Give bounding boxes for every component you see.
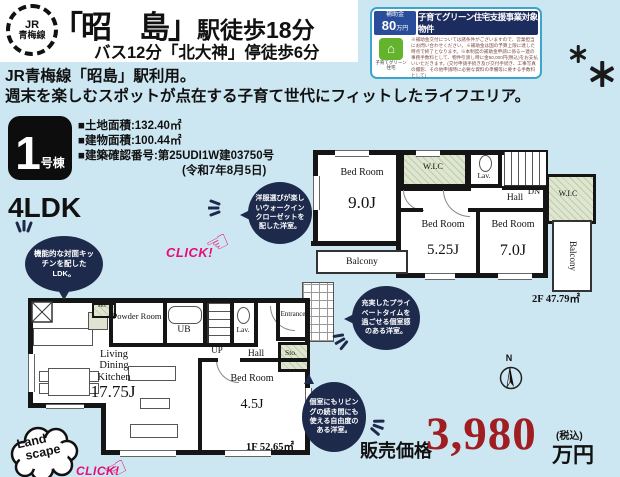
bubble-private: 充実したプライベートタイムを過ごせる個室感のある洋室。 xyxy=(352,286,420,350)
window xyxy=(46,404,84,409)
wall xyxy=(276,337,306,341)
bed4-size: 4.5J xyxy=(226,397,278,412)
wall xyxy=(163,303,167,345)
wall xyxy=(311,241,401,246)
toilet xyxy=(237,307,250,324)
bubble-tail xyxy=(240,210,250,220)
bubble-kitchen: 機能的な対面キッチンを配したLDK。 xyxy=(25,236,103,292)
bed525-size: 5.25J xyxy=(412,242,474,258)
toilet xyxy=(479,155,492,172)
floor-label-2f: 2F 47.79㎡ xyxy=(514,294,598,305)
window xyxy=(498,273,532,280)
stairs-1f xyxy=(207,303,232,343)
kitchen-counter xyxy=(33,328,93,346)
rail-usage-line: JR青梅線「昭島」駅利用。 xyxy=(5,64,195,86)
stairs-2f xyxy=(504,152,546,187)
wall xyxy=(101,403,106,455)
bed70-name: Bed Room xyxy=(484,220,542,231)
bed9-name: Bed Room xyxy=(328,168,396,179)
window xyxy=(313,176,320,210)
bus-access: バス12分「北大神」停徒歩6分 xyxy=(94,39,320,63)
property-facts: ■土地面積:132.40㎡ ■建物面積:100.44㎡ ■建築確認番号:第25U… xyxy=(78,119,274,179)
chair xyxy=(39,371,49,382)
bubble-tail xyxy=(304,374,314,384)
wic-top-label: W.I.C xyxy=(401,162,465,171)
subsidy-badge: 補助金 80万円 子育てグリーン住宅支援事業対象物件 ⌂ 子育てグリーン住宅 ※… xyxy=(370,7,542,79)
bubble-wic: 洋服選びが楽しいウォークインクローゼットを配した洋室。 xyxy=(248,182,312,244)
balcony-2f-right: Balcony xyxy=(552,220,592,292)
hall-label-1f: Hall xyxy=(240,349,272,359)
green-house-icon-label: 子育てグリーン住宅 xyxy=(374,60,408,71)
emphasis-marks xyxy=(14,220,34,236)
balcony-2f-left: Balcony xyxy=(316,250,408,274)
ldk-size: 17.75J xyxy=(70,383,156,401)
sparkle-icon xyxy=(588,60,616,88)
window xyxy=(120,450,176,457)
building-number: 1 xyxy=(15,130,41,176)
powder-room-label: Powder Room xyxy=(112,312,162,321)
bubble-tail xyxy=(58,290,70,300)
entrance-label: Entrance xyxy=(280,311,306,319)
wic-annex-label: W.I.C xyxy=(546,190,590,199)
catch-copy-line: 週末を楽しむスポットが点在する子育て世代にフィットしたライフエリア。 xyxy=(5,84,530,106)
wall xyxy=(468,208,548,212)
compass-n-label: N xyxy=(492,354,526,363)
window xyxy=(335,150,369,157)
window xyxy=(28,354,35,392)
ldk-name: Living Dining Kitchen xyxy=(86,349,142,383)
green-house-icon: ⌂ xyxy=(379,38,403,60)
wall xyxy=(465,150,469,188)
bubble-free: 個室にもリビングの続き間にも使える自由度のある洋室。 xyxy=(302,382,366,452)
sparkle-icon xyxy=(568,44,588,64)
bed525-name: Bed Room xyxy=(412,220,474,231)
chair xyxy=(39,383,49,394)
wall xyxy=(109,343,258,347)
window xyxy=(225,450,271,457)
building-number-badge: 1 号棟 xyxy=(8,116,72,180)
wall xyxy=(276,303,280,339)
wall xyxy=(203,303,207,345)
wall xyxy=(476,208,480,273)
wall xyxy=(498,150,502,188)
price-label: 販売価格 xyxy=(360,437,432,463)
rail-line-badge-bottom: 青梅線 xyxy=(18,31,45,41)
window-box-icon xyxy=(31,301,53,323)
up-label: UP xyxy=(203,346,231,356)
compass-icon xyxy=(498,363,524,391)
rail-line-badge: JR 青梅線 xyxy=(6,4,58,56)
wall xyxy=(198,358,202,450)
lav-label-2f: Lav. xyxy=(470,172,498,180)
window xyxy=(425,273,455,280)
subsidy-amount-box: 補助金 80万円 xyxy=(374,11,416,35)
flyer-canvas: JR 青梅線 「昭 島」駅徒歩18分 バス12分「北大神」停徒歩6分 補助金 8… xyxy=(0,0,620,477)
storage-top-label: Sto. xyxy=(92,304,112,310)
price-unit: 万円 xyxy=(552,439,594,469)
wall xyxy=(401,208,423,212)
ub-label: UB xyxy=(168,325,200,335)
bubble-tail xyxy=(344,314,354,324)
building-number-suffix: 号棟 xyxy=(41,154,65,171)
sofa xyxy=(130,424,178,438)
wall xyxy=(198,358,218,362)
subsidy-banner: 子育てグリーン住宅支援事業対象物件 xyxy=(418,11,538,35)
landscape-cloud[interactable]: Land scape xyxy=(4,424,80,477)
rail-line-badge-top: JR xyxy=(25,20,39,31)
confirmation-number: ■建築確認番号:第25UDI1W建03750号 xyxy=(78,149,274,164)
subsidy-amount-unit: 万円 xyxy=(396,26,408,32)
emphasis-marks xyxy=(208,198,224,218)
bed4-name: Bed Room xyxy=(226,374,278,385)
price-amount: 3,980 xyxy=(426,411,537,458)
wic-annex xyxy=(546,174,596,224)
storage-entrance-label: Sto. xyxy=(278,349,304,357)
subsidy-amount: 80 xyxy=(382,18,396,33)
land-area: ■土地面積:132.40㎡ xyxy=(78,119,274,134)
bed70-size: 7.0J xyxy=(484,242,542,259)
balcony-label: Balcony xyxy=(346,257,378,267)
wall xyxy=(254,303,258,345)
bed9-size: 9.0J xyxy=(328,194,396,212)
window xyxy=(416,150,440,157)
bathtub xyxy=(168,306,202,324)
compass: N xyxy=(496,354,526,396)
wall xyxy=(230,303,234,345)
emphasis-marks xyxy=(365,414,387,438)
building-area: ■建物面積:100.44㎡ xyxy=(78,134,274,149)
balcony-label: Balcony xyxy=(567,241,577,271)
subsidy-disclaimer: ※補助金交付については諸条件がございますので、営業担当にお問い合わせください。※… xyxy=(411,37,538,79)
confirmation-date: (令和7年8月5日) xyxy=(78,164,274,179)
wall xyxy=(401,184,500,188)
lav-label-1f: Lav. xyxy=(230,326,256,334)
hall-label-2f: Hall xyxy=(498,193,532,203)
